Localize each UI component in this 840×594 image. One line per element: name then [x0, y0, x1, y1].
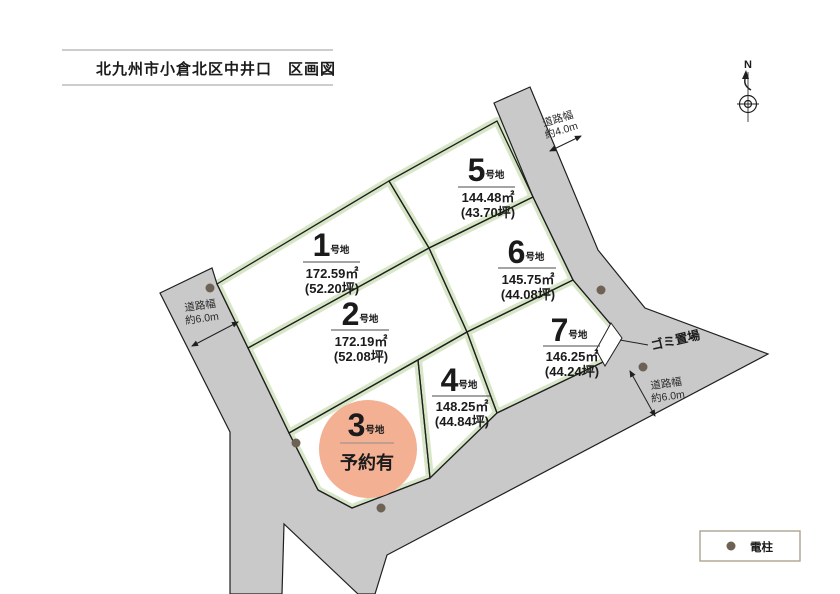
- plot-2-number: 2: [342, 296, 360, 332]
- utility-pole-dot: [292, 439, 301, 448]
- plot-6-number: 6: [508, 234, 526, 270]
- utility-pole-dot: [597, 286, 606, 295]
- plot-1-number-suffix: 号地: [330, 244, 350, 256]
- plot-2-tsubo: (52.08坪): [334, 349, 388, 364]
- plot-5-tsubo: (43.70坪): [461, 205, 515, 220]
- plot-7-tsubo: (44.24坪): [545, 364, 599, 379]
- plot-3-number: 3: [348, 407, 366, 443]
- plot-3-number-suffix: 号地: [365, 424, 385, 436]
- utility-pole-dot: [639, 363, 648, 372]
- plot-2-area: 172.19㎡: [335, 334, 388, 349]
- utility-pole-dot: [377, 504, 386, 513]
- plot-5-number-suffix: 号地: [485, 169, 505, 181]
- plot-2-number-suffix: 号地: [359, 313, 379, 325]
- plot-4-area: 148.25㎡: [436, 399, 489, 414]
- legend-box: 電柱: [700, 531, 800, 561]
- plot-4-tsubo: (44.84坪): [435, 414, 489, 429]
- legend-label: 電柱: [750, 540, 773, 554]
- plot-7-number: 7: [551, 312, 569, 348]
- utility-pole-dot: [206, 284, 215, 293]
- plot-4-number: 4: [441, 362, 459, 398]
- page-title: 北九州市小倉北区中井口 区画図: [96, 60, 336, 78]
- plot-7-area: 146.25㎡: [546, 349, 599, 364]
- north-compass: N: [737, 59, 759, 122]
- legend-pole-dot-icon: [727, 542, 736, 551]
- reserved-circle: [319, 400, 417, 498]
- plot-6-area: 145.75㎡: [502, 272, 555, 287]
- lot-map-page: 北九州市小倉北区中井口 区画図 1号地 172.59㎡ (52.20坪) 2号地: [0, 0, 840, 594]
- plot-3-status: 予約有: [340, 452, 394, 473]
- plot-6-number-suffix: 号地: [525, 251, 545, 263]
- north-label: N: [744, 59, 752, 71]
- plot-6-tsubo: (44.08坪): [501, 287, 555, 302]
- plot-4-number-suffix: 号地: [458, 379, 478, 391]
- plot-1-tsubo: (52.20坪): [305, 281, 359, 296]
- plot-5-area: 144.48㎡: [462, 190, 515, 205]
- lot-map-svg: 北九州市小倉北区中井口 区画図 1号地 172.59㎡ (52.20坪) 2号地: [0, 0, 840, 594]
- plot-1-area: 172.59㎡: [306, 266, 359, 281]
- title-block: 北九州市小倉北区中井口 区画図: [62, 50, 336, 85]
- plot-1-number: 1: [313, 227, 331, 263]
- plot-7-number-suffix: 号地: [568, 329, 588, 341]
- road-width-label-top-right: 道路幅 約4.0m: [540, 108, 580, 142]
- plot-5-number: 5: [468, 152, 486, 188]
